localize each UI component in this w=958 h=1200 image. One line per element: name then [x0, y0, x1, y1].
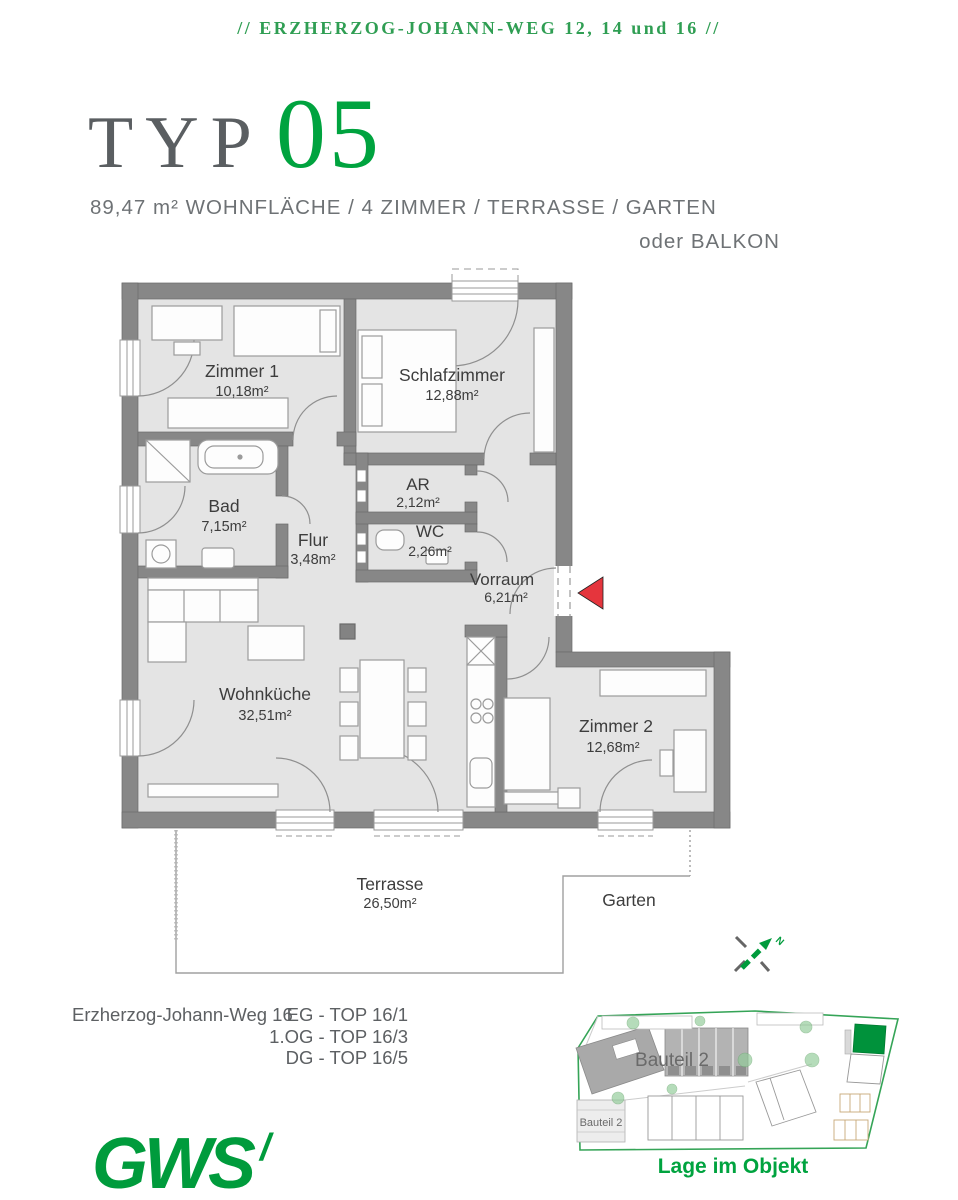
site-plan: Bauteil 2 Bauteil 2 Lage im Objekt	[576, 1011, 898, 1178]
area-zimmer2: 12,68m²	[586, 740, 639, 756]
brochure-page: Zimmer 1 10,18m² Schlafzimmer 12,88m² Ba…	[0, 0, 958, 1200]
label-ar: AR	[406, 475, 430, 494]
terrace-outline: Terrasse 26,50m² Garten	[176, 830, 690, 973]
unit-line: EG - TOP 16/1	[230, 1004, 408, 1026]
footer-unit-list: EG - TOP 16/1 1.OG - TOP 16/3 DG - TOP 1…	[230, 1004, 408, 1069]
area-vorraum: 6,21m²	[484, 589, 528, 605]
summary-line-2: oder BALKON	[90, 230, 780, 254]
entrance-arrow-icon	[578, 577, 603, 609]
label-wohnkueche: Wohnküche	[219, 684, 311, 704]
entrance-opening	[554, 566, 574, 616]
label-terrasse: Terrasse	[356, 874, 423, 894]
compass-icon: N	[735, 935, 786, 971]
area-wc: 2,26m²	[408, 543, 452, 559]
area-bad: 7,15m²	[201, 519, 246, 535]
label-zimmer2: Zimmer 2	[579, 716, 653, 736]
page-title: TYP05	[88, 76, 382, 191]
unit-line: 1.OG - TOP 16/3	[230, 1026, 408, 1048]
label-vorraum: Vorraum	[470, 570, 534, 589]
label-bad: Bad	[208, 496, 239, 516]
area-ar: 2,12m²	[396, 494, 440, 510]
gws-logo-text: GWS	[92, 1124, 252, 1200]
area-zimmer1: 10,18m²	[215, 384, 268, 400]
label-zimmer1: Zimmer 1	[205, 361, 279, 381]
terrace-door-1	[276, 810, 334, 836]
siteplan-building-right	[847, 1054, 884, 1084]
title-prefix: TYP	[88, 102, 264, 184]
siteplan-label-large: Bauteil 2	[635, 1050, 709, 1071]
label-wc: WC	[416, 522, 444, 541]
unit-line: DG - TOP 16/5	[230, 1047, 408, 1069]
summary-line-1: 89,47 m² WOHNFLÄCHE / 4 ZIMMER / TERRASS…	[90, 196, 780, 220]
garden-door-zimmer2	[598, 810, 653, 836]
floor-plan: Zimmer 1 10,18m² Schlafzimmer 12,88m² Ba…	[120, 269, 730, 836]
siteplan-label-small: Bauteil 2	[580, 1117, 623, 1129]
terrace-door-2	[374, 810, 463, 836]
furniture-kitchen-block	[467, 637, 495, 807]
siteplan-highlight-building	[853, 1024, 886, 1054]
gws-logo: GWS/	[92, 1112, 271, 1200]
label-flur: Flur	[298, 530, 328, 550]
area-schlafzimmer: 12,88m²	[425, 388, 478, 404]
label-garten: Garten	[602, 890, 656, 910]
street-header: // ERZHERZOG-JOHANN-WEG 12, 14 und 16 //	[0, 18, 958, 39]
compass-north-label: N	[773, 935, 786, 948]
area-wohnkueche: 32,51m²	[238, 708, 291, 724]
label-schlafzimmer: Schlafzimmer	[399, 365, 505, 385]
area-flur: 3,48m²	[290, 552, 335, 568]
siteplan-caption: Lage im Objekt	[658, 1155, 809, 1178]
balcony-door-window	[452, 269, 518, 301]
window-zimmer1	[120, 340, 140, 396]
gws-logo-mark: /	[260, 1127, 271, 1169]
window-wohnkueche	[120, 700, 140, 756]
area-terrasse: 26,50m²	[363, 896, 416, 912]
apartment-summary: 89,47 m² WOHNFLÄCHE / 4 ZIMMER / TERRASS…	[90, 196, 780, 254]
title-number: 05	[276, 78, 382, 189]
window-bad	[120, 486, 140, 533]
